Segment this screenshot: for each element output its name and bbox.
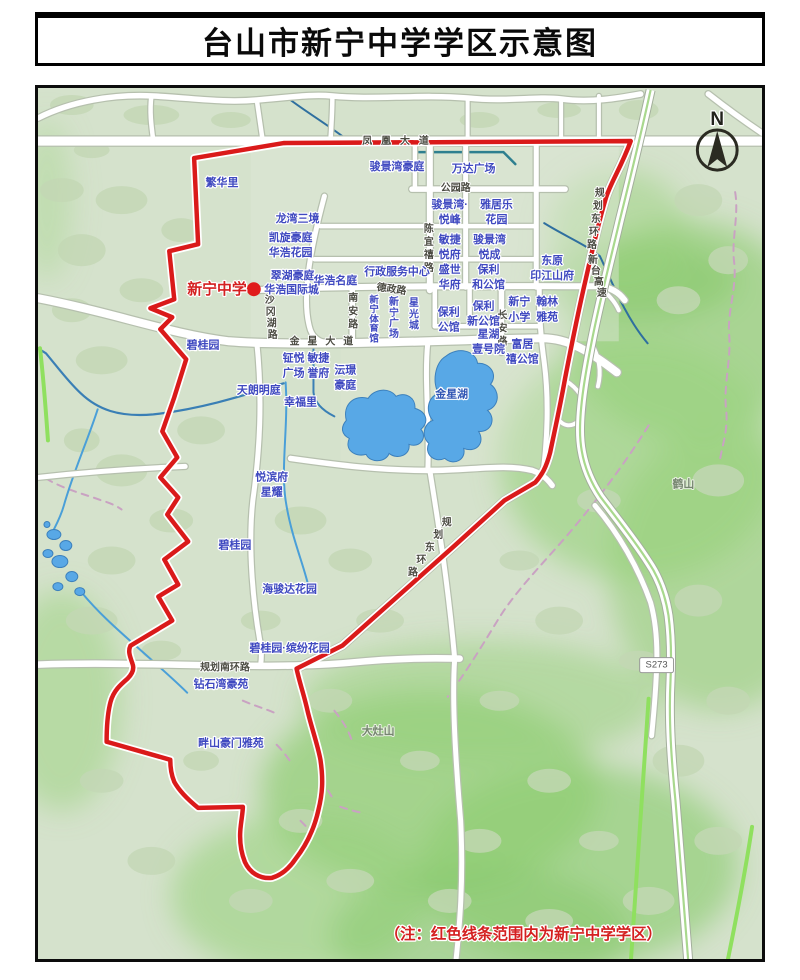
- map-label: 华浩名庭: [313, 273, 357, 287]
- map-frame: 凤凰大道公园路德政路金星大道规划南环路陈宜禧路南安路长安路沙冈湖路规划东环路新台…: [35, 85, 765, 962]
- mountain-label: 大灶山: [362, 724, 395, 738]
- school-label: 新宁中学: [187, 280, 247, 298]
- map-label: 碧桂园: [218, 537, 252, 551]
- map-label: 凯旋豪庭: [269, 230, 313, 244]
- map-label: 翠湖豪庭: [271, 268, 315, 282]
- s273-shield-label: S273: [646, 660, 668, 671]
- map-label: 新宁体育馆: [369, 294, 379, 344]
- map-label: 碧桂园: [186, 337, 220, 351]
- district-map: 凤凰大道公园路德政路金星大道规划南环路陈宜禧路南安路长安路沙冈湖路规划东环路新台…: [38, 88, 762, 959]
- map-label: 天朗明庭: [237, 382, 281, 396]
- map-label: 金星大道: [289, 334, 362, 347]
- map-label: 星光城: [408, 297, 419, 331]
- district-note: （注：红色线条范围内为新宁中学学区）: [385, 924, 662, 943]
- map-label: 碧桂园·缤纷花园: [249, 641, 330, 655]
- school-marker-dot: [247, 282, 261, 296]
- map-label: 万达广场: [451, 161, 496, 175]
- map-label: 新宁广场: [389, 295, 399, 340]
- page-title: 台山市新宁中学学区示意图: [202, 18, 598, 63]
- map-label: 钻石湾豪苑: [194, 677, 249, 691]
- compass-n-label: N: [710, 109, 724, 130]
- map-label: 华浩花园: [269, 245, 313, 259]
- map-label: 畔山豪门雅苑: [198, 736, 264, 750]
- map-label: 行政服务中心: [363, 264, 430, 278]
- map-label: 公园路: [441, 181, 472, 194]
- map-label: 繁华里: [205, 175, 239, 189]
- map-label: 华浩国际城: [264, 282, 319, 296]
- map-label: 凤凰大道: [362, 134, 438, 147]
- map-label: 幸福里: [284, 394, 317, 408]
- map-label: 南安路: [348, 291, 359, 330]
- map-label: 海骏达花园: [262, 582, 317, 596]
- mountain-label: 鹤山: [673, 476, 695, 490]
- schematic-map-page: 台山市新宁中学学区示意图: [0, 0, 800, 980]
- map-label: 规划南环路: [200, 661, 251, 674]
- map-title-box: 台山市新宁中学学区示意图: [35, 12, 765, 66]
- map-label: 龙湾三境: [275, 211, 320, 225]
- map-label: 骏景湾豪庭: [370, 159, 425, 173]
- lake-label: 金星湖: [434, 386, 468, 400]
